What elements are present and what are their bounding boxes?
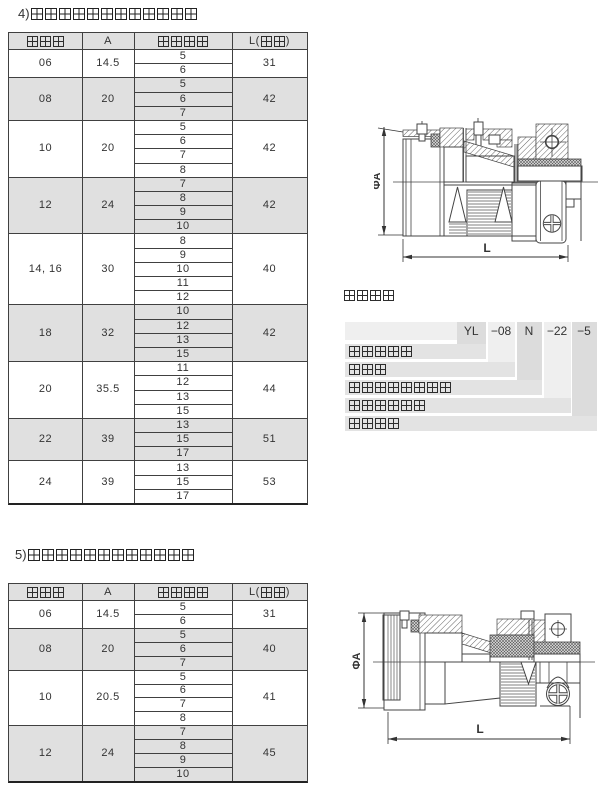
svg-text:L: L <box>476 722 483 736</box>
svg-text:ΦA: ΦA <box>374 172 383 189</box>
svg-text:L: L <box>483 241 490 255</box>
svg-text:ΦA: ΦA <box>351 652 363 669</box>
